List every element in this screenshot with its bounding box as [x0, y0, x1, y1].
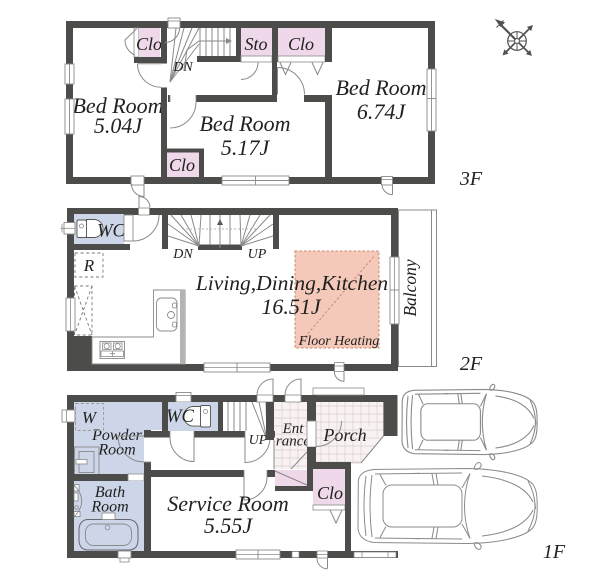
svg-text:Sto: Sto	[244, 34, 267, 54]
svg-text:Floor Heating: Floor Heating	[298, 334, 380, 349]
svg-text:Bed Room: Bed Room	[335, 75, 426, 100]
svg-text:WC: WC	[97, 222, 125, 242]
svg-text:Clo: Clo	[317, 483, 343, 503]
svg-text:3F: 3F	[459, 168, 483, 190]
svg-text:R: R	[83, 256, 95, 275]
svg-text:Clo: Clo	[136, 34, 162, 54]
svg-text:rance: rance	[276, 434, 310, 450]
svg-text:Clo: Clo	[169, 155, 195, 175]
svg-text:5.17J: 5.17J	[221, 135, 271, 160]
svg-text:5.55J: 5.55J	[204, 513, 254, 538]
svg-text:5.04J: 5.04J	[94, 113, 144, 138]
svg-text:6.74J: 6.74J	[357, 99, 407, 124]
svg-text:UP: UP	[249, 433, 268, 448]
svg-text:W: W	[82, 408, 98, 427]
svg-text:Porch: Porch	[322, 425, 366, 445]
svg-text:DN: DN	[172, 247, 193, 262]
svg-text:Balcony: Balcony	[400, 259, 420, 317]
svg-text:1F: 1F	[543, 541, 566, 563]
svg-text:2F: 2F	[460, 353, 483, 375]
svg-text:Clo: Clo	[288, 34, 314, 54]
svg-text:UP: UP	[248, 247, 267, 262]
svg-text:Bed Room: Bed Room	[199, 111, 290, 136]
svg-text:WC: WC	[166, 407, 194, 427]
svg-text:Living,Dining,Kitchen: Living,Dining,Kitchen	[195, 271, 388, 295]
svg-text:DN: DN	[172, 60, 193, 75]
svg-text:16.51J: 16.51J	[261, 294, 322, 319]
svg-text:Room: Room	[97, 442, 135, 459]
